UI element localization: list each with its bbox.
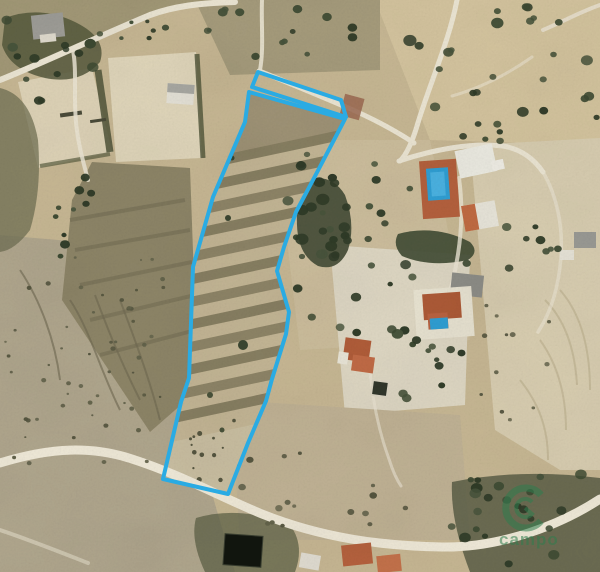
- watermark-text: campo: [499, 530, 559, 549]
- aerial-photo: campo: [0, 0, 600, 572]
- satellite-map-view[interactable]: campo: [0, 0, 600, 572]
